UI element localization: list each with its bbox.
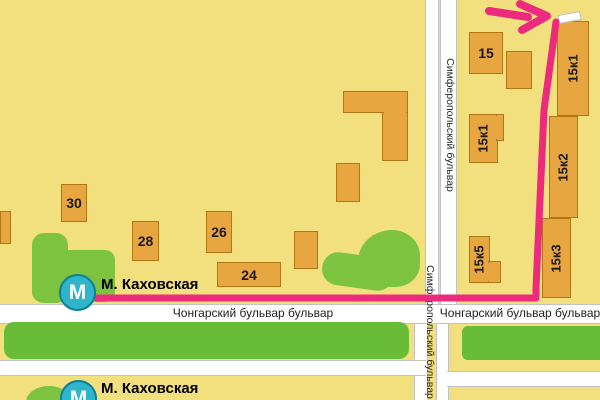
metro-letter: М <box>70 388 88 400</box>
street-label-simferopolsky-south: Симферопольский бульвар <box>423 259 437 400</box>
building-number: 28 <box>138 234 154 248</box>
street-label-chongarsky-west: Чонгарский бульвар бульвар <box>168 306 338 320</box>
metro-letter: М <box>69 282 87 303</box>
building: 15к3 <box>542 218 571 298</box>
building <box>336 163 360 202</box>
street-chongarsky-south-lane <box>0 360 426 376</box>
building-number: 15к5 <box>473 245 486 273</box>
building: 28 <box>132 221 159 261</box>
building-number: 15к3 <box>550 244 563 272</box>
street-chongarsky-south-lane <box>447 371 600 387</box>
street-label-simferopolsky-north: Симферопольский бульвар <box>443 52 457 198</box>
building: 26 <box>206 211 232 253</box>
station-label-kakhovskaya: М. Каховская <box>101 276 198 294</box>
boulevard-median-west <box>4 322 409 359</box>
building: 15к2 <box>549 116 578 218</box>
building <box>0 211 11 244</box>
map-canvas[interactable]: 302826241515к115к515к115к215к3 Чонгарски… <box>0 0 600 400</box>
building: 15 <box>469 32 503 74</box>
building <box>384 110 406 114</box>
building-number: 15к2 <box>557 153 570 181</box>
station-label-kakhovskaya: М. Каховская <box>101 380 198 398</box>
building-number: 30 <box>66 196 82 210</box>
building <box>487 263 491 281</box>
building-number: 26 <box>211 225 227 239</box>
street-label-chongarsky-east: Чонгарский бульвар бульвар <box>437 306 600 320</box>
building-number: 24 <box>241 268 257 282</box>
building: 15к1 <box>557 21 589 116</box>
building <box>494 116 498 139</box>
building-number: 15к1 <box>566 54 579 82</box>
building-number: 15к1 <box>477 124 490 152</box>
building <box>294 231 318 269</box>
street-simferopolsky-lane <box>436 320 449 400</box>
building: 24 <box>217 262 281 287</box>
building <box>506 51 532 89</box>
route-arrow-icon <box>489 11 528 17</box>
boulevard-median-east <box>462 326 600 360</box>
building <box>382 112 408 161</box>
metro-station-icon[interactable]: М <box>60 380 97 400</box>
route-arrow-icon <box>520 4 547 30</box>
building: 30 <box>61 184 87 222</box>
building-number: 15 <box>478 46 494 60</box>
metro-station-icon[interactable]: М <box>59 274 96 311</box>
